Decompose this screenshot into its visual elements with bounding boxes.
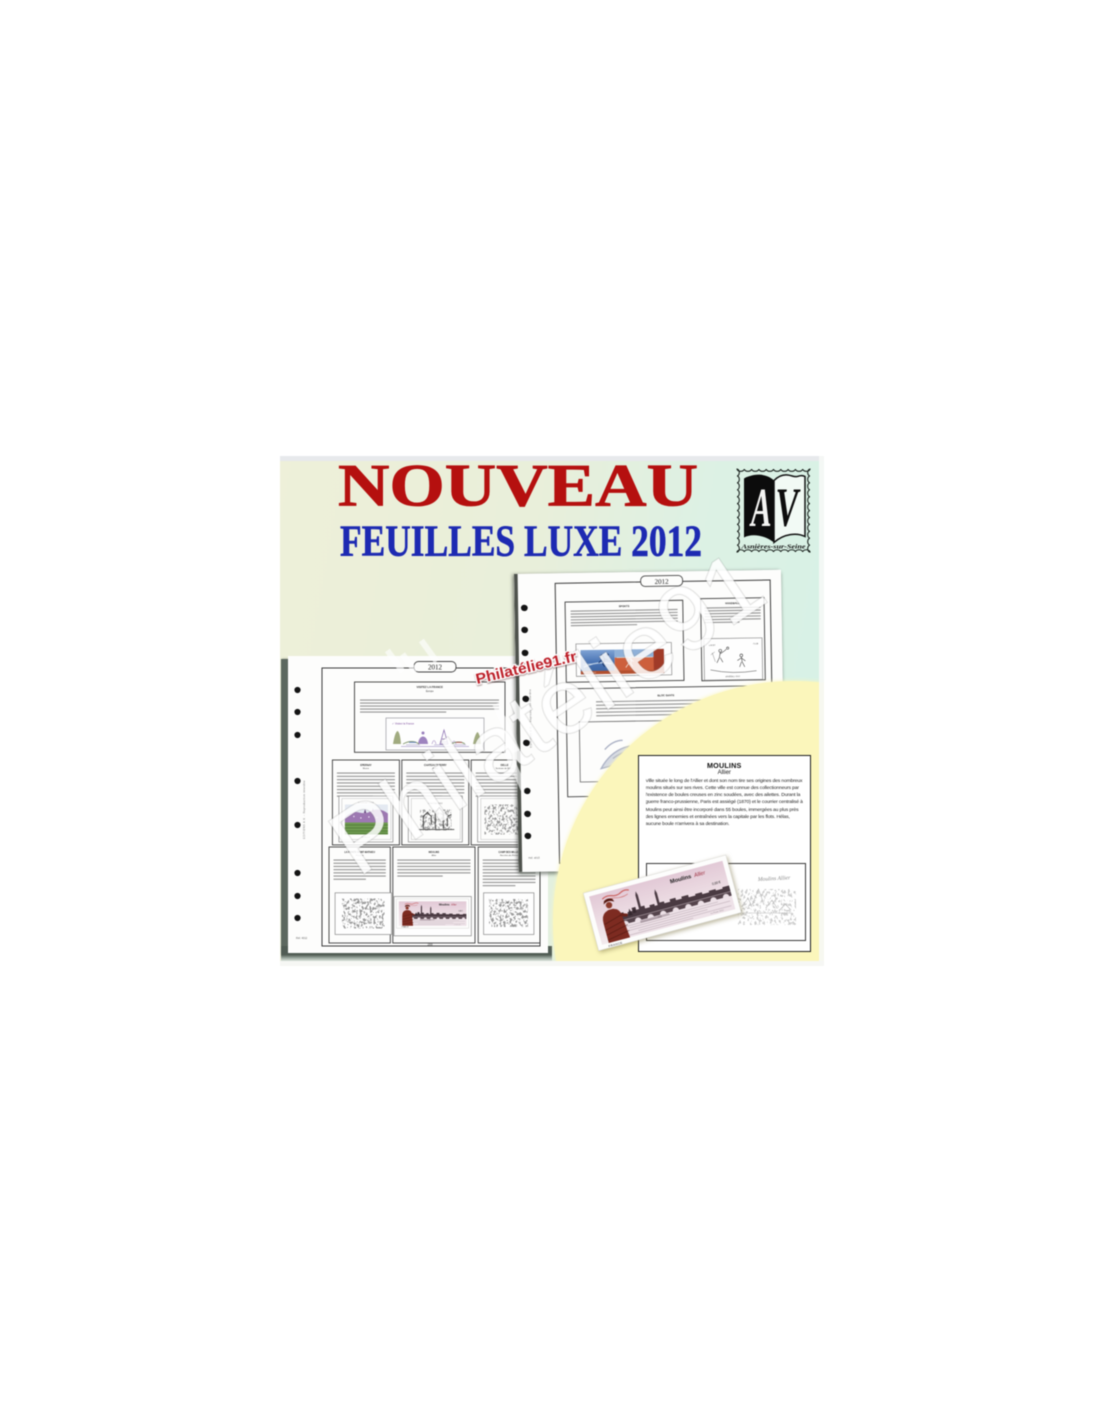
svg-text:Philatélie91.fr: Philatélie91.fr [474,649,578,688]
